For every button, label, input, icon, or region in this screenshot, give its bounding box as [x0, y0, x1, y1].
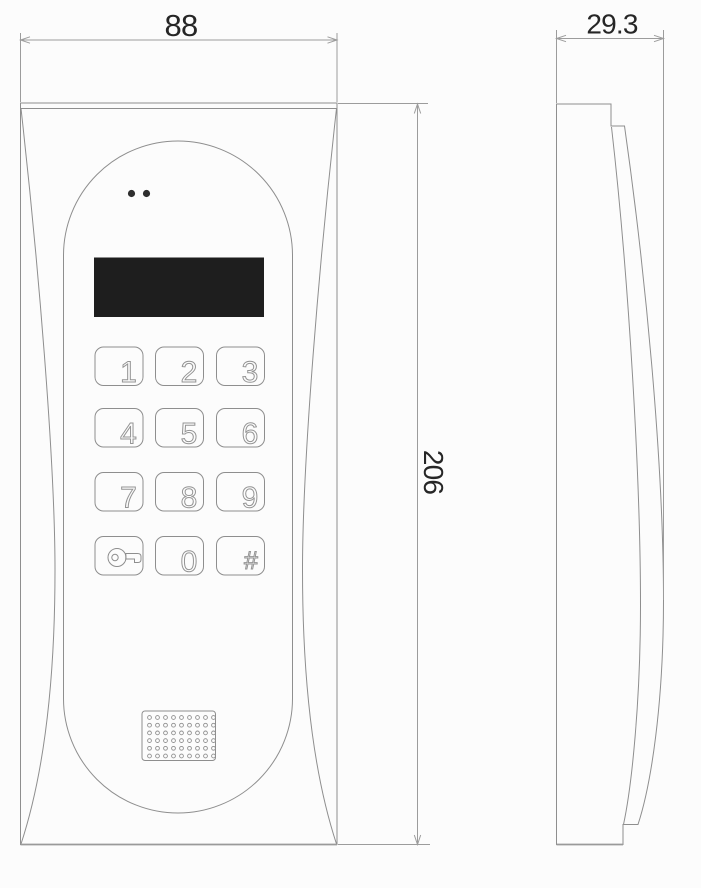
keypad-button-hash: # — [217, 537, 265, 576]
height-dimension-label: 206 — [418, 450, 449, 495]
grille-hole — [148, 716, 152, 720]
grille-hole — [188, 716, 192, 720]
grille-hole — [156, 723, 160, 727]
keypad-button-1: 1 — [95, 347, 143, 389]
grille-hole — [188, 731, 192, 735]
key-label: 3 — [242, 356, 259, 389]
keypad-button-2: 2 — [156, 347, 204, 389]
grille-hole — [212, 723, 216, 727]
keypad-button-6: 6 — [217, 409, 265, 451]
width-dimension-label: 88 — [165, 8, 198, 43]
grille-hole — [196, 716, 200, 720]
dimensions: 88 29.3 206 — [21, 8, 664, 845]
grille-hole — [148, 754, 152, 758]
speaker-grille-frame — [142, 711, 216, 761]
grille-hole — [180, 754, 184, 758]
led-dot — [128, 190, 135, 197]
grille-hole — [172, 723, 176, 727]
grille-hole — [204, 754, 208, 758]
grille-hole — [212, 731, 216, 735]
grille-hole — [180, 723, 184, 727]
grille-hole — [196, 731, 200, 735]
grille-hole — [148, 739, 152, 743]
depth-dimension: 29.3 — [557, 9, 664, 601]
grille-hole — [188, 754, 192, 758]
grille-hole — [164, 754, 168, 758]
grille-hole — [212, 739, 216, 743]
keypad-button-7: 7 — [95, 473, 143, 515]
grille-hole — [164, 739, 168, 743]
drawing-svg: 1 2 3 4 5 6 — [0, 0, 701, 888]
grille-hole — [164, 731, 168, 735]
key-label: # — [244, 547, 258, 575]
key-label: 8 — [181, 482, 198, 515]
keypad-button-4: 4 — [95, 409, 143, 451]
grille-hole — [204, 716, 208, 720]
grille-hole — [156, 731, 160, 735]
key-label: 4 — [120, 418, 137, 451]
side-profile-outline — [557, 104, 664, 845]
keypad-button-5: 5 — [156, 409, 204, 451]
grille-hole — [156, 746, 160, 750]
keypad-button-9: 9 — [217, 473, 265, 515]
grille-hole — [196, 754, 200, 758]
grille-hole — [148, 746, 152, 750]
grille-holes — [148, 716, 216, 758]
grille-hole — [172, 731, 176, 735]
front-view: 1 2 3 4 5 6 — [21, 103, 338, 845]
height-dimension: 206 — [338, 104, 449, 845]
key-label: 7 — [120, 482, 137, 515]
grille-hole — [180, 739, 184, 743]
grille-hole — [188, 723, 192, 727]
key-label: 1 — [120, 356, 137, 389]
grille-hole — [196, 723, 200, 727]
grille-hole — [212, 754, 216, 758]
grille-hole — [204, 731, 208, 735]
key-label: 5 — [181, 418, 198, 451]
grille-hole — [148, 731, 152, 735]
key-label: 0 — [181, 546, 198, 579]
grille-hole — [172, 716, 176, 720]
side-profile-inner-line — [612, 127, 641, 825]
keypad-button-3: 3 — [217, 347, 265, 389]
key-icon — [108, 549, 141, 567]
width-dimension: 88 — [21, 8, 338, 102]
key-label: 2 — [181, 356, 198, 389]
grille-hole — [156, 716, 160, 720]
grille-hole — [180, 716, 184, 720]
grille-hole — [148, 723, 152, 727]
grille-hole — [212, 746, 216, 750]
keypad: 1 2 3 4 5 6 — [95, 347, 265, 579]
front-bevel-right — [303, 109, 337, 845]
technical-drawing: 1 2 3 4 5 6 — [0, 0, 701, 888]
key-label: 6 — [242, 418, 259, 451]
depth-dimension-label: 29.3 — [586, 9, 638, 40]
grille-hole — [196, 746, 200, 750]
grille-hole — [164, 723, 168, 727]
front-outer-frame — [21, 103, 338, 845]
grille-hole — [188, 739, 192, 743]
speaker-grille — [142, 711, 216, 761]
front-bevel-left — [21, 109, 55, 845]
grille-hole — [204, 739, 208, 743]
keypad-button-8: 8 — [156, 473, 204, 515]
grille-hole — [204, 723, 208, 727]
grille-hole — [172, 746, 176, 750]
keypad-button-key — [95, 537, 143, 576]
grille-hole — [164, 746, 168, 750]
led-dot — [143, 190, 150, 197]
grille-hole — [196, 739, 200, 743]
side-view — [557, 104, 664, 845]
grille-hole — [180, 746, 184, 750]
grille-hole — [180, 731, 184, 735]
keypad-button-0: 0 — [156, 537, 204, 579]
key-face — [95, 537, 143, 576]
grille-hole — [164, 716, 168, 720]
front-capsule-face — [64, 141, 293, 813]
grille-hole — [156, 739, 160, 743]
grille-hole — [156, 754, 160, 758]
grille-hole — [188, 746, 192, 750]
grille-hole — [172, 754, 176, 758]
grille-hole — [172, 739, 176, 743]
grille-hole — [212, 716, 216, 720]
grille-hole — [204, 746, 208, 750]
display-screen — [94, 258, 264, 318]
key-label: 9 — [242, 482, 259, 515]
